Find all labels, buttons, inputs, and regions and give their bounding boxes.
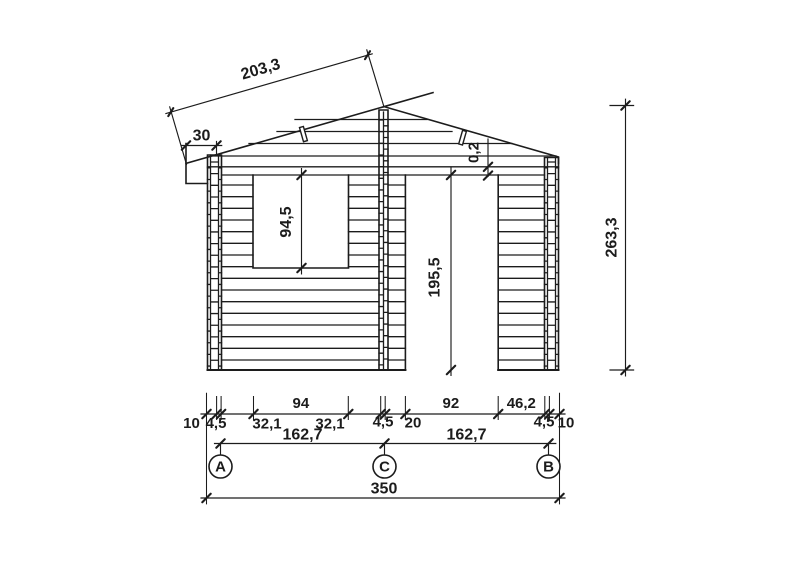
- dimension-lines: [166, 50, 634, 504]
- label-chain-10-right: 10: [558, 415, 575, 432]
- label-chain-45-left: 4,5: [206, 415, 227, 432]
- label-spacing-ac: 162,7: [282, 427, 322, 444]
- axis-label-b: B: [543, 459, 554, 476]
- label-door-height: 195,5: [427, 257, 444, 297]
- door-opening: [405, 175, 498, 370]
- axis-label-c: C: [379, 459, 390, 476]
- label-door-width: 92: [443, 395, 460, 412]
- label-window-height: 94,5: [278, 206, 295, 237]
- label-door-top-gap: 0,2: [466, 142, 483, 163]
- post-log-ends: [208, 112, 559, 370]
- label-overall-height: 263,3: [604, 217, 621, 257]
- label-chain-20: 20: [405, 415, 422, 432]
- label-chain-321-a: 32,1: [252, 416, 281, 433]
- label-overall-width: 350: [371, 481, 398, 498]
- label-spacing-cb: 162,7: [446, 427, 486, 444]
- label-window-width: 94: [293, 395, 310, 412]
- label-chain-45-right: 4,5: [534, 414, 555, 431]
- axis-bubbles: A C B: [209, 455, 560, 478]
- eave-box: [186, 144, 208, 184]
- axis-label-a: A: [215, 459, 226, 476]
- elevation-svg: A C B 203,3 30 0,2 94,5 195,5 263,3 94 9…: [0, 0, 800, 565]
- shed-front-elevation-drawing: A C B 203,3 30 0,2 94,5 195,5 263,3 94 9…: [0, 0, 800, 565]
- left-corner-post: [208, 155, 222, 370]
- window-opening: [253, 175, 349, 268]
- label-overhang: 30: [193, 128, 211, 145]
- roof-left-slope: [186, 93, 433, 164]
- right-corner-post: [545, 158, 559, 371]
- label-right-section: 46,2: [507, 395, 536, 412]
- label-roof-slope: 203,3: [239, 56, 282, 84]
- label-chain-45-mid: 4,5: [373, 414, 394, 431]
- building-geometry: [186, 93, 559, 370]
- label-chain-10-left: 10: [183, 415, 200, 432]
